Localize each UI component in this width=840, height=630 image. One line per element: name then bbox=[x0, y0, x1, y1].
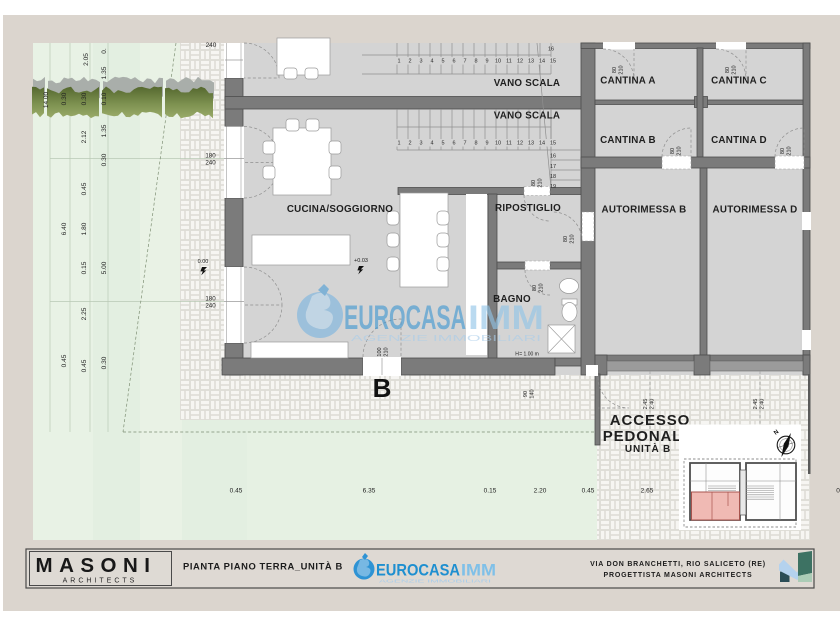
svg-text:AGENZIE IMMOBILIARI: AGENZIE IMMOBILIARI bbox=[351, 334, 541, 343]
svg-text:13: 13 bbox=[528, 59, 534, 65]
svg-text:IMM: IMM bbox=[468, 299, 544, 337]
svg-text:15: 15 bbox=[550, 59, 556, 65]
svg-text:210: 210 bbox=[787, 146, 793, 155]
svg-text:14: 14 bbox=[539, 141, 545, 147]
svg-text:16: 16 bbox=[550, 154, 556, 160]
svg-text:0.45: 0.45 bbox=[81, 359, 88, 372]
svg-text:EUROCASA: EUROCASA bbox=[376, 561, 460, 580]
svg-text:0.15: 0.15 bbox=[484, 488, 497, 495]
svg-text:CANTINA B: CANTINA B bbox=[600, 135, 656, 146]
svg-text:1.80: 1.80 bbox=[81, 222, 88, 235]
svg-text:AUTORIMESSA D: AUTORIMESSA D bbox=[713, 205, 798, 216]
svg-text:180: 180 bbox=[205, 296, 216, 303]
svg-text:2.65: 2.65 bbox=[641, 488, 654, 495]
svg-text:9: 9 bbox=[485, 141, 488, 147]
svg-text:3: 3 bbox=[419, 141, 422, 147]
svg-text:CANTINA C: CANTINA C bbox=[711, 76, 767, 87]
svg-text:UNITÀ B: UNITÀ B bbox=[625, 442, 671, 455]
svg-text:210: 210 bbox=[732, 65, 738, 74]
svg-text:4: 4 bbox=[430, 59, 433, 65]
svg-text:18: 18 bbox=[550, 174, 556, 180]
svg-text:240: 240 bbox=[205, 303, 216, 310]
svg-text:11: 11 bbox=[506, 141, 512, 147]
svg-text:0.10: 0.10 bbox=[101, 92, 108, 105]
svg-text:7: 7 bbox=[463, 59, 466, 65]
svg-text:16: 16 bbox=[548, 47, 554, 53]
svg-text:6.35: 6.35 bbox=[363, 488, 376, 495]
svg-text:B: B bbox=[373, 373, 392, 403]
svg-text:AUTORIMESSA B: AUTORIMESSA B bbox=[602, 205, 687, 216]
svg-text:80: 80 bbox=[670, 148, 676, 154]
svg-text:180: 180 bbox=[205, 153, 216, 160]
svg-text:210: 210 bbox=[539, 283, 545, 292]
svg-text:CANTINA D: CANTINA D bbox=[711, 135, 767, 146]
svg-text:PROGETTISTA MASONI ARCHITECTS: PROGETTISTA MASONI ARCHITECTS bbox=[604, 572, 753, 579]
svg-text:CUCINA/SOGGIORNO: CUCINA/SOGGIORNO bbox=[287, 204, 393, 215]
svg-text:2.45: 2.45 bbox=[753, 399, 759, 410]
svg-text:6.40: 6.40 bbox=[61, 222, 68, 235]
svg-text:210: 210 bbox=[570, 234, 576, 243]
svg-text:CANTINA A: CANTINA A bbox=[600, 76, 655, 87]
svg-text:0.: 0. bbox=[101, 48, 108, 54]
svg-text:VIA DON BRANCHETTI, RIO SALICE: VIA DON BRANCHETTI, RIO SALICETO (RE) bbox=[590, 561, 766, 568]
svg-text:RIPOSTIGLIO: RIPOSTIGLIO bbox=[495, 203, 561, 214]
svg-text:210: 210 bbox=[677, 146, 683, 155]
svg-text:IMM: IMM bbox=[461, 561, 496, 580]
svg-text:2.45: 2.45 bbox=[643, 399, 649, 410]
svg-text:210: 210 bbox=[619, 65, 625, 74]
svg-text:VANO SCALA: VANO SCALA bbox=[494, 78, 561, 89]
svg-text:19: 19 bbox=[550, 184, 556, 190]
svg-text:4: 4 bbox=[430, 141, 433, 147]
svg-text:ARCHITECTS: ARCHITECTS bbox=[63, 578, 138, 585]
svg-text:210: 210 bbox=[384, 347, 390, 356]
svg-text:H = 1.00 m: H = 1.00 m bbox=[515, 352, 539, 358]
svg-text:MASONI: MASONI bbox=[36, 554, 157, 577]
svg-text:100: 100 bbox=[377, 347, 383, 356]
svg-text:240: 240 bbox=[205, 160, 216, 167]
svg-text:14: 14 bbox=[539, 59, 545, 65]
svg-text:5: 5 bbox=[441, 141, 444, 147]
svg-text:0.30: 0.30 bbox=[81, 92, 88, 105]
svg-text:2: 2 bbox=[408, 141, 411, 147]
svg-text:6: 6 bbox=[452, 141, 455, 147]
svg-text:15: 15 bbox=[550, 141, 556, 147]
svg-text:80: 80 bbox=[725, 67, 731, 73]
svg-text:10: 10 bbox=[495, 59, 501, 65]
svg-text:1: 1 bbox=[397, 141, 400, 147]
svg-text:14.00: 14.00 bbox=[43, 91, 50, 108]
svg-text:5: 5 bbox=[441, 59, 444, 65]
svg-text:8: 8 bbox=[474, 141, 477, 147]
svg-text:210: 210 bbox=[538, 178, 544, 187]
svg-text:5.00: 5.00 bbox=[101, 261, 108, 274]
svg-text:1.35: 1.35 bbox=[101, 124, 108, 137]
svg-text:PIANTA PIANO TERRA_UNITÀ B: PIANTA PIANO TERRA_UNITÀ B bbox=[183, 561, 343, 572]
svg-text:17: 17 bbox=[550, 164, 556, 170]
svg-text:80: 80 bbox=[563, 236, 569, 242]
svg-text:80: 80 bbox=[780, 148, 786, 154]
svg-text:EUROCASA: EUROCASA bbox=[344, 299, 466, 337]
svg-text:80: 80 bbox=[612, 67, 618, 73]
svg-text:2.12: 2.12 bbox=[81, 130, 88, 143]
svg-text:80: 80 bbox=[532, 285, 538, 291]
svg-text:0.30: 0.30 bbox=[101, 356, 108, 369]
svg-text:80: 80 bbox=[531, 180, 537, 186]
svg-text:0.00: 0.00 bbox=[198, 259, 209, 265]
svg-text:0.45: 0.45 bbox=[61, 354, 68, 367]
svg-text:7: 7 bbox=[463, 141, 466, 147]
svg-text:12: 12 bbox=[517, 59, 523, 65]
svg-text:90: 90 bbox=[523, 391, 529, 397]
svg-text:0.45: 0.45 bbox=[230, 488, 243, 495]
svg-text:AGENZIE IMMOBILIARI: AGENZIE IMMOBILIARI bbox=[379, 579, 491, 584]
svg-text:0.45: 0.45 bbox=[81, 182, 88, 195]
svg-text:3: 3 bbox=[419, 59, 422, 65]
svg-text:0.15: 0.15 bbox=[81, 261, 88, 274]
svg-text:9: 9 bbox=[485, 59, 488, 65]
svg-text:8: 8 bbox=[474, 59, 477, 65]
svg-text:2.40: 2.40 bbox=[650, 399, 656, 410]
svg-text:240: 240 bbox=[206, 42, 217, 49]
svg-text:1.35: 1.35 bbox=[101, 66, 108, 79]
svg-text:0.45: 0.45 bbox=[582, 488, 595, 495]
svg-text:2: 2 bbox=[408, 59, 411, 65]
svg-text:2.05: 2.05 bbox=[83, 53, 90, 66]
svg-text:1: 1 bbox=[397, 59, 400, 65]
svg-text:2.40: 2.40 bbox=[760, 399, 766, 410]
svg-text:13: 13 bbox=[528, 141, 534, 147]
svg-text:12: 12 bbox=[517, 141, 523, 147]
svg-text:2.20: 2.20 bbox=[534, 488, 547, 495]
svg-text:0: 0 bbox=[836, 488, 840, 495]
svg-text:11: 11 bbox=[506, 59, 512, 65]
svg-text:2.25: 2.25 bbox=[81, 307, 88, 320]
svg-text:ACCESSO: ACCESSO bbox=[610, 412, 690, 429]
svg-text:10: 10 bbox=[495, 141, 501, 147]
svg-text:VANO SCALA: VANO SCALA bbox=[494, 111, 561, 122]
svg-text:+0.03: +0.03 bbox=[354, 258, 368, 264]
svg-text:140: 140 bbox=[530, 389, 536, 398]
svg-text:0.30: 0.30 bbox=[101, 153, 108, 166]
svg-text:6: 6 bbox=[452, 59, 455, 65]
svg-text:0.30: 0.30 bbox=[61, 92, 68, 105]
